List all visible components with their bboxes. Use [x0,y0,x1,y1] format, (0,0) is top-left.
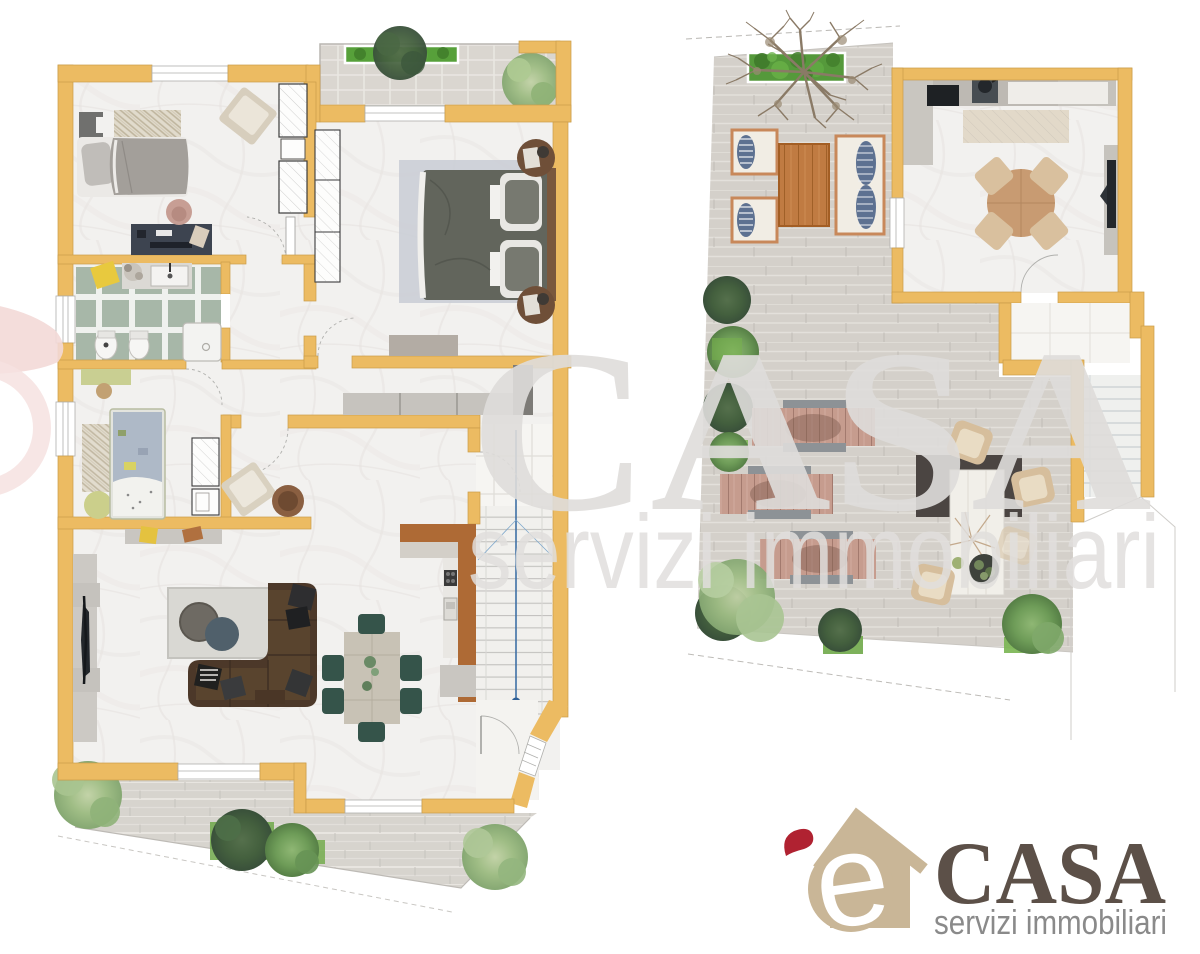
svg-text:servizi immobiliari: servizi immobiliari [934,904,1167,942]
svg-text:servizi immobiliari: servizi immobiliari [468,494,1160,611]
